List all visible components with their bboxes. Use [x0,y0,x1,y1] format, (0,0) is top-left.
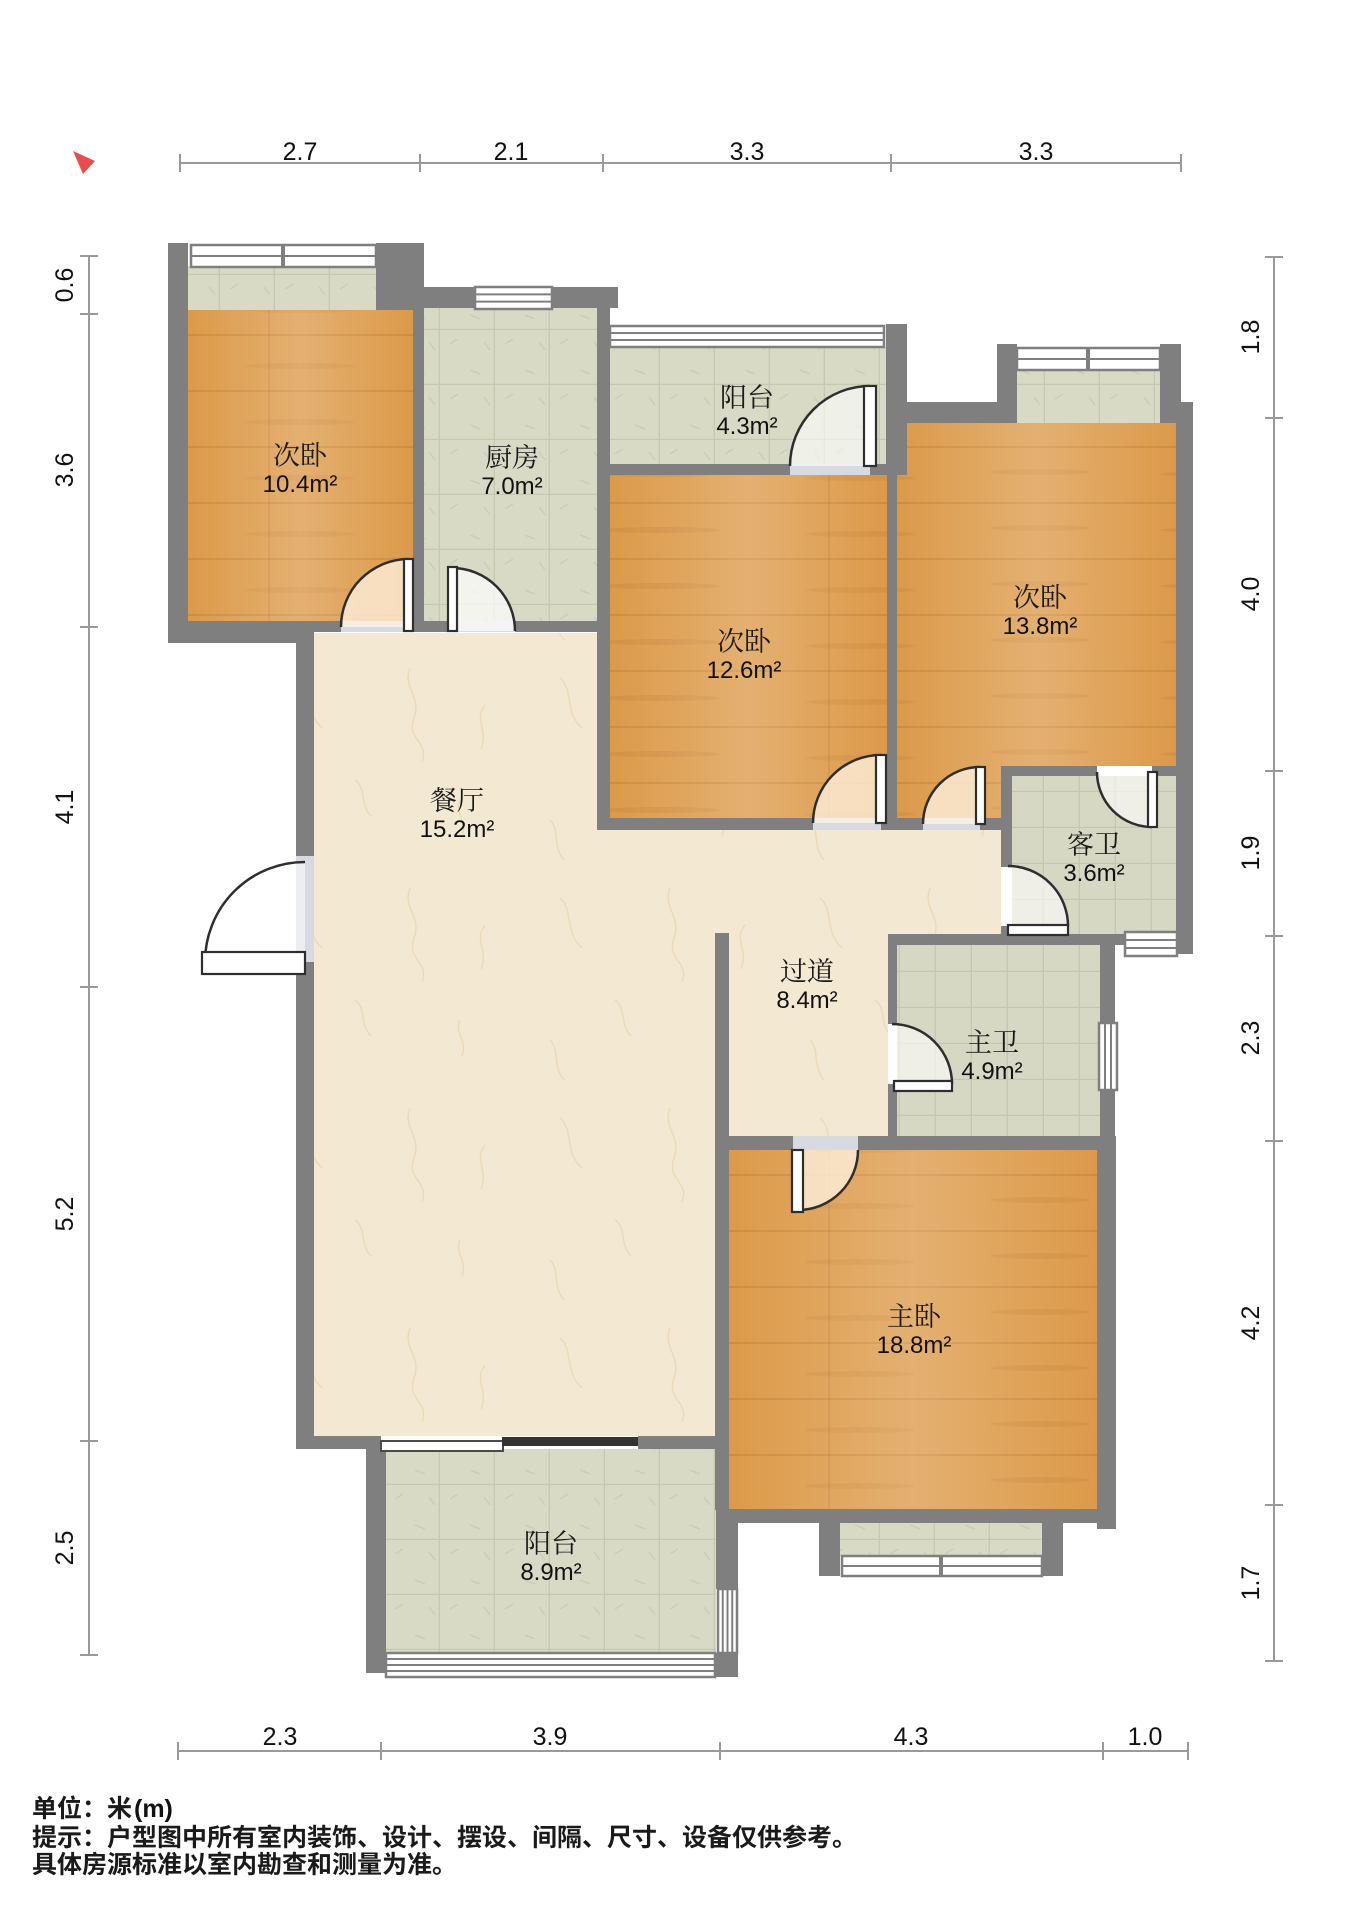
svg-text:1.7: 1.7 [1237,1566,1265,1601]
svg-text:3.3: 3.3 [1019,138,1054,166]
svg-text:2.3: 2.3 [1237,1021,1265,1056]
svg-text:18.8m²: 18.8m² [877,1332,952,1359]
svg-text:2.5: 2.5 [51,1531,79,1566]
svg-text:1.8: 1.8 [1237,320,1265,355]
svg-text:13.8m²: 13.8m² [1003,613,1078,640]
svg-text:2.1: 2.1 [494,138,529,166]
svg-text:4.1: 4.1 [51,790,79,825]
svg-text:4.3: 4.3 [894,1723,929,1751]
svg-text:(m): (m) [134,1795,173,1823]
svg-text:4.0: 4.0 [1237,577,1265,612]
svg-text:2.7: 2.7 [283,138,318,166]
svg-text:8.4m²: 8.4m² [776,987,837,1014]
svg-text:1.9: 1.9 [1237,836,1265,871]
svg-text:10.4m²: 10.4m² [263,471,338,498]
svg-text:8.9m²: 8.9m² [520,1559,581,1586]
svg-text:3.9: 3.9 [533,1723,568,1751]
svg-text:5.2: 5.2 [51,1197,79,1232]
svg-text:4.9m²: 4.9m² [961,1058,1022,1085]
svg-text:3.6m²: 3.6m² [1063,860,1124,887]
svg-text:7.0m²: 7.0m² [481,473,542,500]
svg-text:4.3m²: 4.3m² [716,413,777,440]
svg-text:2.3: 2.3 [263,1723,298,1751]
svg-text:0.6: 0.6 [51,268,79,303]
svg-text:1.0: 1.0 [1128,1723,1163,1751]
svg-text:3.6: 3.6 [51,453,79,488]
svg-text:4.2: 4.2 [1237,1306,1265,1341]
svg-text:12.6m²: 12.6m² [707,657,782,684]
svg-text:15.2m²: 15.2m² [420,816,495,843]
svg-text:3.3: 3.3 [730,138,765,166]
